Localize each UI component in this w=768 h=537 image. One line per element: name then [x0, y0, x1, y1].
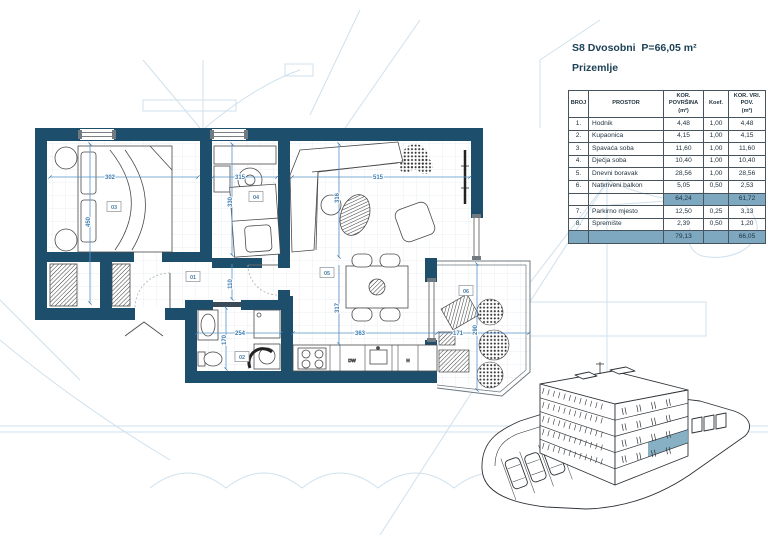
subtotal-area: 64,24 — [664, 193, 704, 206]
dim-515: 515 — [373, 175, 384, 181]
dim-290: 290 — [473, 324, 479, 335]
brochure-page: DW H — [0, 0, 768, 537]
table-row: 2. Kupaonica 4,15 1,00 4,15 — [569, 130, 766, 143]
floorplan-drawing: DW H — [0, 0, 768, 537]
total-row: 79,13 66,05 — [569, 231, 766, 244]
svg-text:06: 06 — [463, 289, 469, 295]
building-illustration — [482, 362, 750, 509]
table-row: 1. Hodnik 4,48 1,00 4,48 — [569, 118, 766, 131]
wardrobe — [112, 264, 130, 306]
room-tag-balkon: 06 — [459, 286, 473, 296]
table-row: 3. Spavaća soba 11,60 1,00 11,60 — [569, 143, 766, 156]
dim-302: 302 — [105, 175, 116, 181]
dim-254: 254 — [235, 331, 246, 337]
centerpiece — [369, 279, 385, 295]
col-header-kor-vri-pov: KOR. VRI. POV. (m²) — [729, 91, 766, 118]
table-row: 5. Dnevni boravak 28,56 1,00 28,56 — [569, 168, 766, 181]
subtotal-row: 64,24 61,72 — [569, 193, 766, 206]
room-tag-hodnik: 01 — [186, 272, 200, 282]
fridge-label: H — [406, 358, 409, 363]
col-header-kor-povrsina: KOR. POVRŠINA (m²) — [664, 91, 704, 118]
subtotal-value: 61,72 — [729, 193, 766, 206]
total-value: 66,05 — [729, 231, 766, 244]
page-title: S8 Dvosobni P=66,05 m² — [572, 42, 697, 54]
dim-110: 110 — [228, 279, 234, 289]
outdoor-bench — [439, 350, 469, 372]
room-tag-dnevni-boravak: 05 — [320, 268, 334, 278]
dim-363: 363 — [355, 331, 366, 337]
col-header-koef: Koef. — [704, 91, 729, 118]
room-tag-djecja-soba: 04 — [249, 192, 263, 202]
room-tag-kupaonica: 02 — [235, 352, 249, 362]
table-row: 8. Spremište 2,39 0,50 1,20 — [569, 218, 766, 231]
chair — [352, 254, 372, 267]
svg-text:01: 01 — [190, 275, 196, 281]
shower — [254, 310, 280, 338]
glass-wall-living — [472, 214, 481, 260]
dim-171: 171 — [453, 331, 464, 337]
dim-170: 170 — [222, 334, 228, 345]
dim-450: 450 — [86, 216, 92, 227]
table-row: 7. Parkirno mjesto 12,50 0,25 3,13 — [569, 206, 766, 219]
dim-330: 330 — [228, 196, 234, 207]
chair — [352, 308, 372, 321]
page-subtitle: Prizemlje — [572, 62, 618, 74]
total-area: 79,13 — [664, 231, 704, 244]
room-tag-spavaca-soba: 03 — [107, 202, 121, 212]
table-row: 4. Dječja soba 10,40 1,00 10,40 — [569, 155, 766, 168]
dim-317: 317 — [335, 302, 341, 313]
entrance-arrow — [125, 322, 163, 336]
svg-text:04: 04 — [253, 195, 260, 201]
col-header-prostor: PROSTOR — [589, 91, 664, 118]
antenna — [596, 362, 604, 374]
table-row: 6. Natkriveni balkon 5,05 0,50 2,53 — [569, 180, 766, 193]
wardrobe — [50, 264, 77, 306]
chair — [380, 308, 400, 321]
nightstand — [55, 147, 77, 169]
bathroom-sliding-door — [213, 302, 241, 307]
toilet — [204, 352, 222, 366]
kitchen-sink — [370, 350, 387, 364]
table-header-row: BROJ PROSTOR KOR. POVRŠINA (m²) Koef. KO… — [569, 91, 766, 118]
svg-text:02: 02 — [239, 355, 245, 361]
dishwasher-label: DW — [348, 358, 356, 363]
chair — [380, 254, 400, 267]
dim-316: 316 — [335, 192, 341, 203]
col-header-broj: BROJ — [569, 91, 589, 118]
desk — [214, 146, 276, 164]
nightstand — [55, 229, 77, 251]
pillow — [244, 225, 272, 253]
kitchen: DW H — [293, 345, 437, 371]
area-table: BROJ PROSTOR KOR. POVRŠINA (m²) Koef. KO… — [568, 90, 766, 244]
svg-text:03: 03 — [111, 205, 117, 211]
cabinet — [214, 166, 230, 192]
dim-315: 315 — [235, 175, 246, 181]
svg-text:05: 05 — [324, 271, 330, 277]
